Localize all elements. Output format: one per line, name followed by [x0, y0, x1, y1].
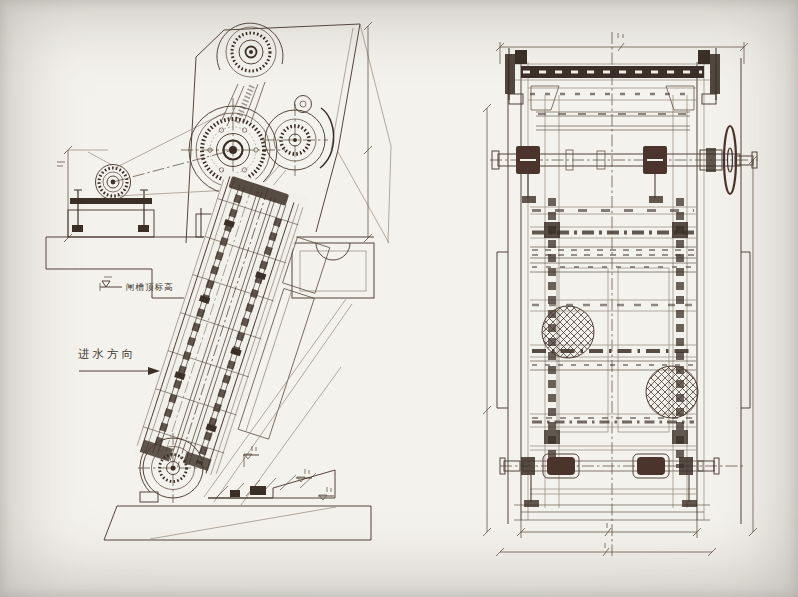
motor-pedestal — [68, 210, 154, 237]
foundation-slab — [104, 506, 371, 540]
bar-screen-drawing: 闸槽顶标高 进水方向 — [0, 0, 798, 597]
top-sprocket — [217, 23, 283, 126]
dim-text-illegible — [57, 162, 65, 166]
arrowhead-icon — [148, 367, 160, 375]
motor-assembly — [68, 165, 222, 238]
gusset-plate-right — [666, 86, 694, 110]
front-view — [483, 32, 758, 556]
flow-direction: 进水方向 — [78, 348, 160, 375]
elevation-marker-main: 闸槽顶标高 — [100, 277, 174, 292]
elevation-flag-2 — [296, 469, 312, 482]
channel-opening — [497, 252, 750, 408]
bottom-shaft — [500, 454, 745, 507]
elevation-triangle-icon — [102, 281, 110, 287]
perforated-disc-right — [646, 366, 698, 418]
pivot-notch — [316, 243, 350, 260]
top-beam — [505, 48, 720, 130]
side-view: 闸槽顶标高 进水方向 — [46, 22, 391, 540]
dimension-lines-front — [483, 33, 757, 556]
scanned-technical-drawing: 闸槽顶标高 进水方向 — [0, 0, 798, 597]
flow-direction-label: 进水方向 — [78, 348, 136, 360]
idler-roller — [295, 96, 312, 113]
perforated-disc-left — [542, 306, 594, 358]
dim-text-illegible-top — [618, 33, 623, 38]
elevation-label: 闸槽顶标高 — [126, 282, 174, 292]
drive-shaft — [490, 126, 758, 203]
screen-body — [133, 170, 344, 494]
frame-structure — [497, 32, 750, 556]
